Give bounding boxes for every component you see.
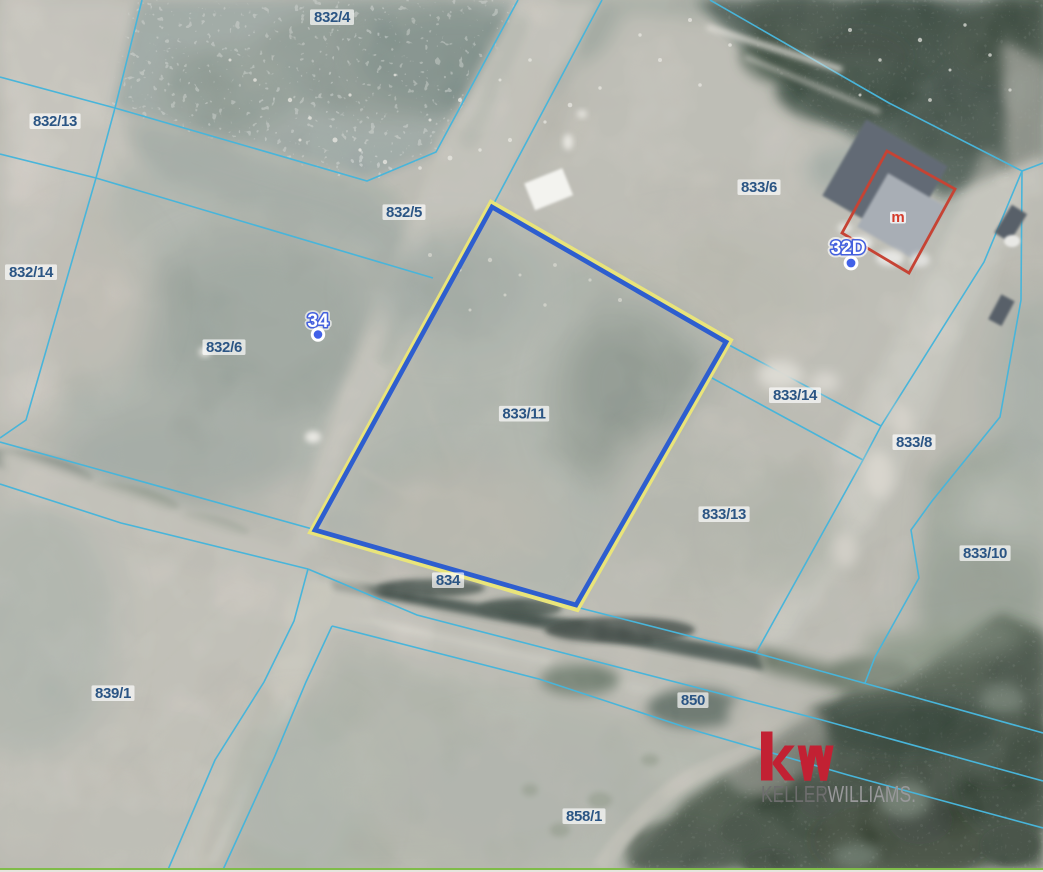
svg-text:833/10: 833/10	[963, 545, 1007, 562]
svg-text:850: 850	[681, 692, 705, 709]
svg-text:858/1: 858/1	[566, 808, 602, 825]
svg-text:833/6: 833/6	[741, 179, 777, 196]
svg-text:839/1: 839/1	[95, 685, 131, 702]
svg-text:833/8: 833/8	[896, 434, 932, 451]
svg-text:833/13: 833/13	[702, 506, 746, 523]
svg-text:832/4: 832/4	[314, 9, 351, 26]
svg-text:KELLERWILLIAMS.: KELLERWILLIAMS.	[761, 781, 916, 807]
svg-text:832/13: 832/13	[33, 113, 77, 130]
svg-text:832/14: 832/14	[9, 264, 54, 281]
svg-text:832/5: 832/5	[386, 204, 422, 221]
svg-text:833/14: 833/14	[773, 387, 818, 404]
svg-text:833/11: 833/11	[502, 406, 545, 423]
svg-text:834: 834	[436, 572, 461, 589]
svg-text:m: m	[891, 209, 904, 226]
svg-text:832/6: 832/6	[206, 339, 242, 356]
svg-text:32D: 32D	[831, 238, 866, 259]
